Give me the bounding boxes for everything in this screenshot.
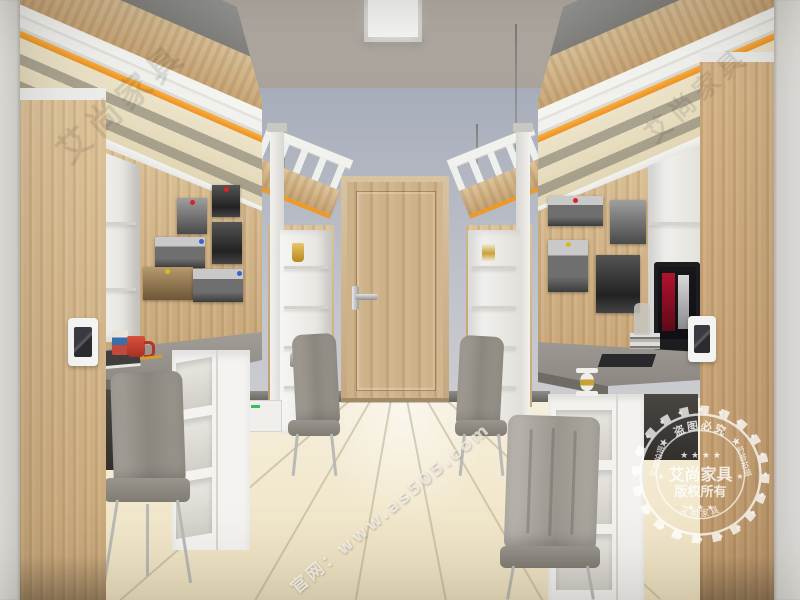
stamp-subtitle: 版权所有	[674, 484, 726, 500]
keyboard	[598, 354, 656, 367]
stamp-star-left: ★	[657, 472, 664, 481]
pinned-photo	[596, 255, 640, 313]
shelf-edge	[216, 350, 218, 550]
pinned-photo	[610, 200, 646, 244]
chair-leg	[146, 504, 149, 576]
pinned-photo	[212, 222, 242, 264]
stamp-stars-top: ★ ★ ★ ★	[680, 451, 721, 461]
dorm-room-render: 艾尚家具 艾尚家具 官网：www.as505.com ★ 盗图必究 ★ 艾尚家具…	[0, 0, 800, 600]
post-cap	[513, 123, 533, 132]
device-screen	[694, 325, 710, 353]
left-chair-seat	[104, 478, 190, 502]
left-chair-back	[110, 371, 186, 485]
small-cabinet	[246, 400, 282, 432]
copyright-stamp: ★ 盗图必究 ★ 艾尚家具 实物拍摄 实物拍摄 ★ ★ ★ ★ 艾尚家具 版权所…	[628, 402, 773, 547]
cabinet-led	[251, 405, 260, 408]
stamp-title: 艾尚家具	[668, 465, 732, 484]
stamp-star-right: ★	[736, 472, 743, 481]
hourglass-small	[482, 243, 495, 262]
book-stack	[630, 333, 660, 349]
right-chair-back	[504, 414, 601, 551]
pinned-photo	[193, 269, 243, 302]
bottle-decor	[634, 303, 650, 335]
door-handle	[355, 294, 378, 300]
pinned-photo	[155, 237, 205, 268]
pinned-photo	[548, 196, 603, 226]
red-mug	[127, 336, 145, 357]
stamp-stars-bottom: ★ ★ ★	[687, 503, 714, 512]
hourglass	[580, 373, 594, 391]
pen-cup	[112, 330, 128, 355]
left-pillar	[0, 0, 20, 600]
far-right-chair-back	[456, 335, 505, 429]
pinned-photo	[177, 198, 207, 234]
door-panel-inlay	[356, 191, 436, 391]
post-cap	[267, 123, 287, 132]
wall-panel-device	[68, 318, 98, 366]
trophy	[292, 243, 304, 262]
wardrobe-base-shadow	[700, 556, 776, 600]
hourglass-base	[576, 391, 598, 396]
pinned-photo	[212, 185, 240, 217]
ceiling-light	[368, 0, 418, 37]
right-chair-seat	[500, 546, 600, 568]
wardrobe-base-shadow	[18, 556, 106, 600]
pinned-photo	[548, 240, 588, 292]
far-left-chair-back	[292, 333, 341, 427]
door-threshold-shadow	[341, 398, 449, 403]
shelf-edge	[616, 394, 618, 600]
device-screen	[74, 327, 92, 357]
right-pillar	[774, 0, 800, 600]
wall-panel-device	[688, 316, 716, 362]
pinned-photo	[143, 267, 193, 300]
screen-poster-red	[662, 273, 675, 331]
